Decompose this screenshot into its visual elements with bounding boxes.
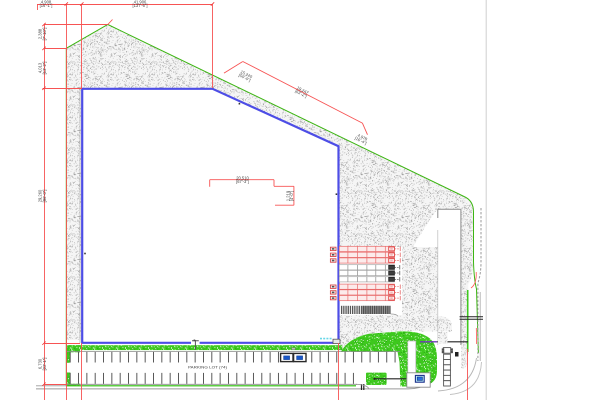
- svg-text:[4'-0"]: [4'-0"]: [289, 191, 294, 201]
- svg-text:[67'-3"]: [67'-3"]: [236, 179, 249, 184]
- svg-text:[7'-10"]: [7'-10"]: [42, 28, 47, 41]
- svg-text:[16'-1"]: [16'-1"]: [40, 3, 53, 8]
- svg-text:[137'-6"]: [137'-6"]: [133, 3, 148, 8]
- svg-text:[22'-1"]: [22'-1"]: [42, 358, 47, 371]
- svg-text:[96'-0"]: [96'-0"]: [42, 190, 47, 203]
- svg-text:PARKING LOT (74): PARKING LOT (74): [188, 366, 227, 370]
- svg-text:[13'-2"]: [13'-2"]: [42, 62, 47, 75]
